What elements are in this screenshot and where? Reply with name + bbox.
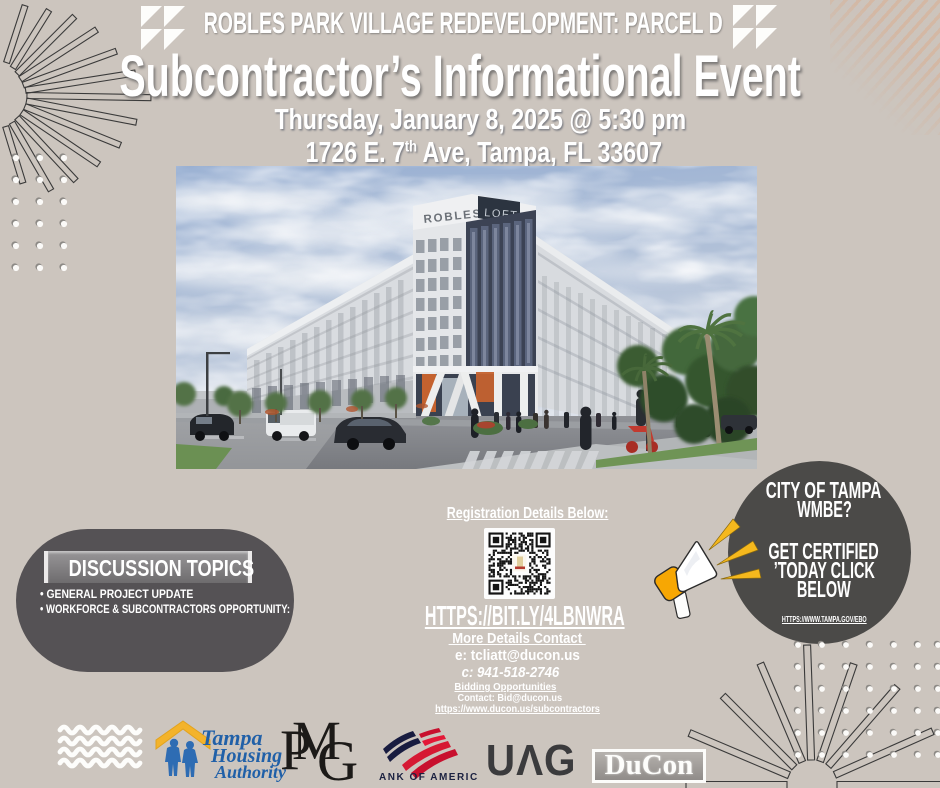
svg-text:ANK OF AMERIC: ANK OF AMERIC — [379, 772, 479, 782]
svg-text:Authority: Authority — [214, 762, 287, 782]
